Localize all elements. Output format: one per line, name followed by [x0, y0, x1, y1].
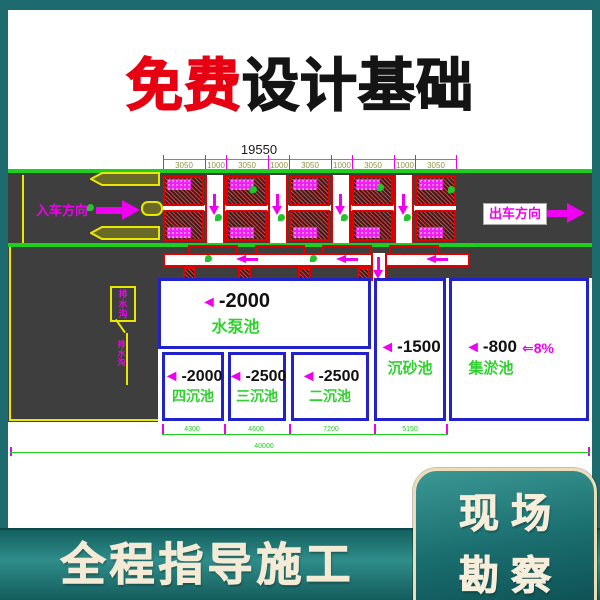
exit-direction-label: 出车方向: [489, 206, 541, 221]
green-marker: [205, 255, 212, 262]
promo-image: 免费设计基础 19550 3050 1000 3050 1000 3050 10…: [0, 0, 600, 600]
island-nose: [141, 201, 163, 216]
ground-yellow-edge: [9, 419, 158, 421]
headline-highlight: 免费: [126, 54, 242, 118]
slope-note-text: 排水沟: [117, 289, 130, 319]
slope-note-box: 排水沟: [110, 286, 136, 322]
dim-seg: 4300: [177, 426, 207, 433]
tank-silt: ◄-800 集淤池: [449, 278, 589, 421]
flow-arrow-left-head: [336, 255, 346, 263]
depth-marker-icon: ◄: [164, 368, 180, 385]
dim-line-total-bottom: [10, 452, 590, 453]
wash-pad: [419, 179, 443, 190]
green-marker: [215, 214, 222, 221]
panel-line-1: 现场: [416, 481, 594, 539]
dim-seg: 7200: [316, 426, 346, 433]
depth-marker-icon: ◄: [379, 339, 395, 356]
tank-name: 水泵池: [211, 313, 259, 337]
green-marker: [278, 214, 285, 221]
traffic-island: [90, 172, 160, 186]
wash-pad: [230, 227, 254, 238]
green-marker: [377, 184, 384, 191]
tank-depth: ◄-2000: [164, 368, 223, 386]
green-marker: [448, 186, 455, 193]
tank-sand: ◄-1500 沉砂池: [374, 278, 446, 421]
flow-arrow-down: [377, 257, 380, 270]
headline: 免费设计基础: [8, 48, 592, 124]
dim-tick: [456, 155, 457, 169]
depth-marker-icon: ◄: [465, 339, 481, 356]
entry-arrow-head: [122, 200, 140, 220]
dim-line-top: [163, 159, 457, 160]
wash-pad: [167, 227, 191, 238]
tank-name: 沉砂池: [387, 357, 432, 378]
footer-slogan: 全程指导施工: [0, 534, 415, 596]
flow-arrow-down: [213, 194, 216, 206]
depth-marker-icon: ◄: [201, 294, 217, 311]
dim-line-bottom: [162, 434, 448, 435]
tank-name: 四沉池: [172, 386, 214, 406]
green-marker: [250, 186, 257, 193]
green-marker: [341, 214, 348, 221]
panel-line-2: 勘察: [416, 543, 594, 600]
slope-percent-label: ⇐8%: [522, 340, 554, 357]
dim-seg: 4600: [241, 426, 271, 433]
depth-marker-icon: ◄: [228, 368, 244, 385]
flow-arrow-left: [346, 258, 358, 261]
green-marker: [87, 204, 94, 211]
tank-name: 集淤池: [468, 357, 513, 378]
flow-arrow-left-head: [426, 255, 436, 263]
green-marker: [310, 255, 317, 262]
flow-arrow-left: [246, 258, 258, 261]
flow-arrow-down: [402, 194, 405, 206]
dim-total-top: 19550: [229, 142, 289, 157]
entry-direction-label: 入车方向: [36, 200, 88, 219]
dim-tick: [163, 155, 164, 169]
tank-3: ◄-2500 三沉池: [228, 352, 286, 421]
flow-arrow-down: [276, 194, 279, 206]
tank-4: ◄-2000 四沉池: [162, 352, 224, 421]
flow-arrow-left-head: [236, 255, 246, 263]
dim-total-bottom: 40000: [246, 443, 282, 450]
wash-pad: [419, 227, 443, 238]
flow-arrow-down: [339, 194, 342, 206]
tank-pump: ◄-2000 水泵池: [158, 278, 371, 349]
road-yellow-line: [22, 175, 24, 243]
flow-arrow-left: [436, 258, 448, 261]
tank-depth: ◄-800: [465, 337, 517, 357]
dim-seg: 5150: [395, 426, 425, 433]
tank-depth: ◄-2500: [301, 368, 360, 386]
wash-pad: [293, 227, 317, 238]
tank-depth: ◄-1500: [379, 337, 440, 357]
wash-pad: [293, 179, 317, 190]
tank-depth: ◄-2000: [201, 290, 270, 313]
depth-marker-icon: ◄: [301, 368, 317, 385]
tank-depth: ◄-2500: [228, 368, 287, 386]
footer-panel: 现场 勘察: [413, 468, 597, 600]
headline-rest: 设计基础: [242, 54, 474, 118]
tank-name: 二沉池: [309, 386, 351, 406]
green-marker: [404, 214, 411, 221]
ground-yellow-edge: [9, 247, 11, 420]
tank-name: 三沉池: [236, 386, 278, 406]
leader-note-text: 排水沟: [116, 340, 127, 386]
tank-2: ◄-2500 二沉池: [291, 352, 369, 421]
traffic-island: [90, 226, 160, 240]
wash-pad: [167, 179, 191, 190]
exit-arrow-head: [567, 203, 585, 223]
exit-arrow: [547, 210, 567, 217]
entry-arrow: [96, 207, 122, 214]
exit-direction-box: 出车方向: [483, 203, 547, 225]
wash-pad: [356, 227, 380, 238]
